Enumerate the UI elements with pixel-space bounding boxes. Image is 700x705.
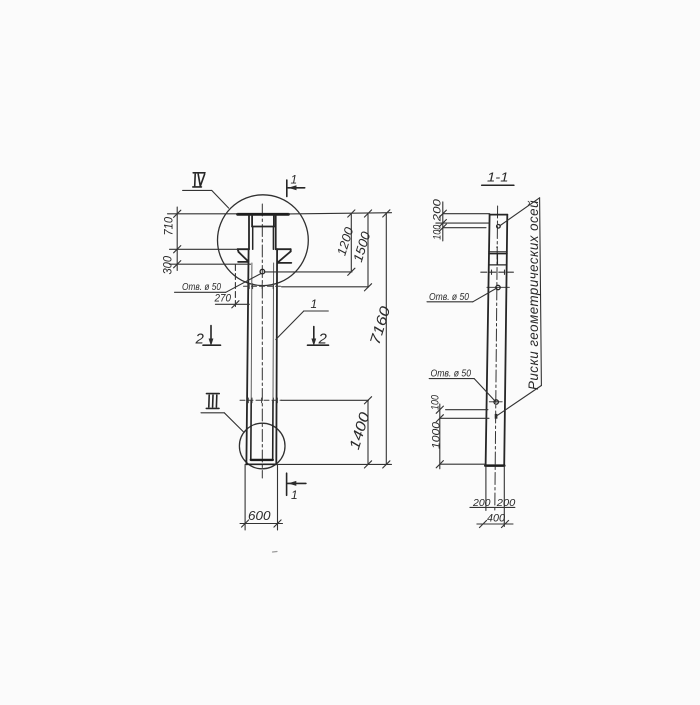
svg-text:1: 1 [291, 173, 298, 187]
svg-text:400: 400 [487, 513, 506, 525]
svg-text:1000: 1000 [431, 421, 443, 449]
svg-text:100: 100 [430, 394, 442, 410]
svg-text:Риски геометрических осей: Риски геометрических осей [526, 200, 541, 390]
svg-text:1: 1 [291, 488, 298, 502]
svg-text:1: 1 [311, 297, 318, 311]
svg-text:Отв. ø 50: Отв. ø 50 [182, 281, 221, 293]
svg-text:Отв. ø 50: Отв. ø 50 [431, 368, 472, 380]
svg-text:2: 2 [318, 331, 328, 348]
svg-text:1-1: 1-1 [487, 170, 509, 185]
svg-text:7160: 7160 [368, 305, 395, 347]
svg-text:1400: 1400 [347, 411, 373, 452]
svg-text:200: 200 [432, 198, 444, 222]
svg-text:200: 200 [472, 498, 491, 509]
svg-text:100: 100 [431, 224, 443, 240]
svg-text:Отв. ø 50: Отв. ø 50 [429, 291, 469, 303]
svg-text:270: 270 [214, 293, 232, 305]
svg-text:2: 2 [195, 331, 205, 348]
svg-text:200: 200 [496, 498, 516, 509]
svg-text:710: 710 [162, 217, 176, 236]
svg-text:300: 300 [161, 256, 175, 275]
svg-text:600: 600 [248, 509, 271, 523]
